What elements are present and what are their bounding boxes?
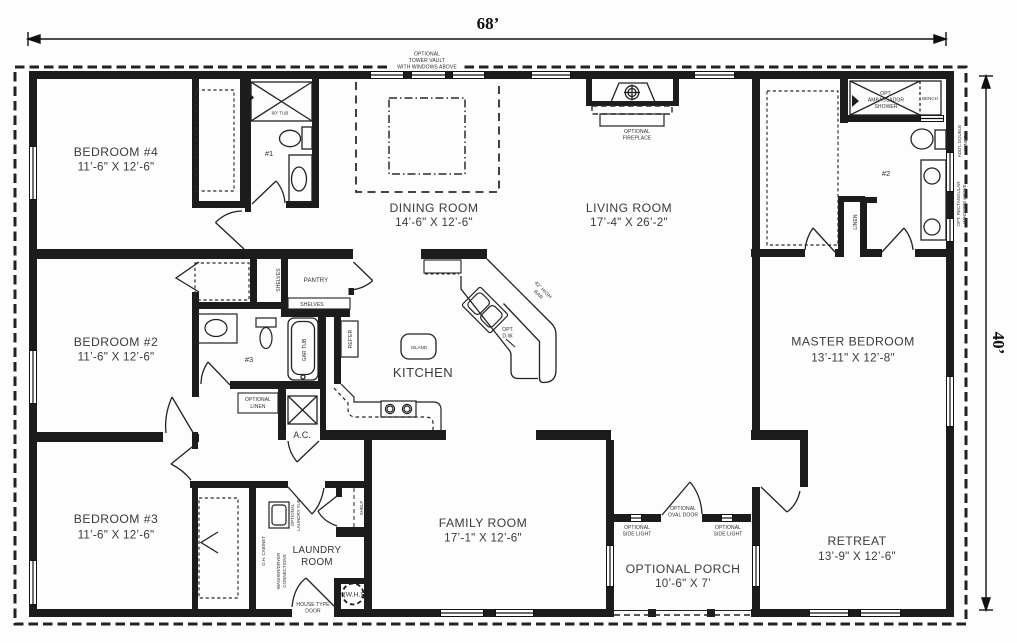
svg-text:LAUNDRY TUB: LAUNDRY TUB [296, 499, 301, 531]
svg-text:TOWER VAULT: TOWER VAULT [409, 58, 445, 64]
svg-text:RETREAT: RETREAT [827, 534, 886, 548]
svg-text:SIDE LIGHT: SIDE LIGHT [623, 532, 652, 538]
svg-text:11’-6" X 12’-6": 11’-6" X 12’-6" [78, 161, 155, 174]
svg-text:OPTIONAL: OPTIONAL [290, 503, 295, 526]
svg-text:KITCHEN: KITCHEN [393, 365, 453, 380]
svg-text:OPTIONAL PORCH: OPTIONAL PORCH [626, 562, 741, 576]
svg-text:17’-4" X 26’-2": 17’-4" X 26’-2" [590, 216, 668, 229]
svg-text:A.C.: A.C. [293, 430, 311, 440]
svg-text:BENCH: BENCH [922, 96, 938, 101]
svg-text:60" TUB: 60" TUB [272, 111, 289, 116]
svg-text:17’-1" X 12’-6": 17’-1" X 12’-6" [444, 532, 522, 545]
svg-text:FAMILY ROOM: FAMILY ROOM [439, 516, 527, 530]
svg-text:CONNECTIONS: CONNECTIONS [282, 554, 287, 587]
svg-text:ROOM: ROOM [301, 557, 333, 568]
svg-text:#2: #2 [882, 169, 890, 178]
svg-text:OPTIONAL: OPTIONAL [670, 506, 696, 512]
svg-text:LINEN: LINEN [853, 214, 859, 230]
svg-text:SIDE LIGHT: SIDE LIGHT [714, 532, 743, 538]
svg-text:ADD’L DOUBLE: ADD’L DOUBLE [957, 125, 962, 158]
svg-text:WINDOW: WINDOW [963, 130, 968, 150]
svg-text:OVAL DOOR: OVAL DOOR [668, 513, 698, 519]
svg-text:BEDROOM #3: BEDROOM #3 [74, 512, 158, 526]
svg-text:LINEN: LINEN [250, 404, 266, 410]
svg-text:PANTRY: PANTRY [304, 278, 328, 284]
svg-text:14’-6" X 12’-6": 14’-6" X 12’-6" [395, 216, 473, 229]
svg-text:OPTIONAL: OPTIONAL [414, 52, 440, 58]
svg-text:#3: #3 [245, 355, 253, 364]
svg-text:LAUNDRY: LAUNDRY [293, 545, 342, 556]
svg-text:#1: #1 [265, 149, 273, 158]
svg-text:MASTER BEDROOM: MASTER BEDROOM [791, 335, 914, 349]
svg-text:GAR TUB: GAR TUB [302, 338, 308, 361]
svg-text:OPTIONAL: OPTIONAL [624, 525, 650, 531]
svg-text:O.H. CABINET: O.H. CABINET [261, 536, 266, 566]
svg-text:ISLAND: ISLAND [411, 345, 428, 350]
svg-text:BEDROOM #4: BEDROOM #4 [74, 145, 158, 159]
svg-text:WASHER/DRYER: WASHER/DRYER [276, 552, 281, 589]
svg-text:40’: 40’ [989, 332, 1008, 355]
svg-text:D.W.: D.W. [502, 334, 513, 340]
svg-text:13’-9" X 12’-6": 13’-9" X 12’-6" [818, 550, 896, 563]
svg-text:FIREPLACE: FIREPLACE [623, 136, 652, 142]
svg-text:11’-6" X 12’-6": 11’-6" X 12’-6" [78, 351, 155, 364]
svg-text:OPTIONAL: OPTIONAL [245, 397, 271, 403]
svg-text:OPT. RECTANGULAR: OPT. RECTANGULAR [956, 181, 961, 227]
svg-text:LIVING ROOM: LIVING ROOM [586, 201, 672, 215]
svg-text:WINDOWS ABOVE: WINDOWS ABOVE [962, 184, 967, 223]
svg-text:HOUSE TYPE: HOUSE TYPE [296, 602, 330, 608]
svg-text:OPT.: OPT. [880, 91, 892, 97]
svg-text:DINING ROOM: DINING ROOM [390, 201, 479, 215]
svg-text:13’-11" X 12’-8": 13’-11" X 12’-8" [811, 352, 895, 365]
svg-text:OPTIONAL: OPTIONAL [624, 129, 650, 135]
svg-text:SHELVES: SHELVES [276, 268, 282, 292]
svg-text:SHOWER: SHOWER [874, 104, 897, 110]
svg-text:11’-6" X 12’-6": 11’-6" X 12’-6" [78, 529, 155, 542]
svg-text:REF’ER: REF’ER [348, 329, 354, 348]
svg-text:OPTIONAL: OPTIONAL [715, 525, 741, 531]
svg-text:SHELVES: SHELVES [300, 302, 324, 308]
svg-text:AMBASSADOR: AMBASSADOR [868, 98, 905, 104]
svg-text:WITH WINDOWS ABOVE: WITH WINDOWS ABOVE [397, 65, 457, 71]
svg-text:BEDROOM #2: BEDROOM #2 [74, 335, 158, 349]
svg-text:68’: 68’ [477, 14, 500, 33]
svg-text:DOOR: DOOR [305, 609, 321, 615]
svg-text:SHELF: SHELF [359, 501, 364, 516]
svg-text:OPT.: OPT. [502, 327, 514, 333]
svg-text:(W.H.): (W.H.) [343, 592, 362, 599]
svg-text:10’-6" X 7’: 10’-6" X 7’ [655, 577, 711, 590]
